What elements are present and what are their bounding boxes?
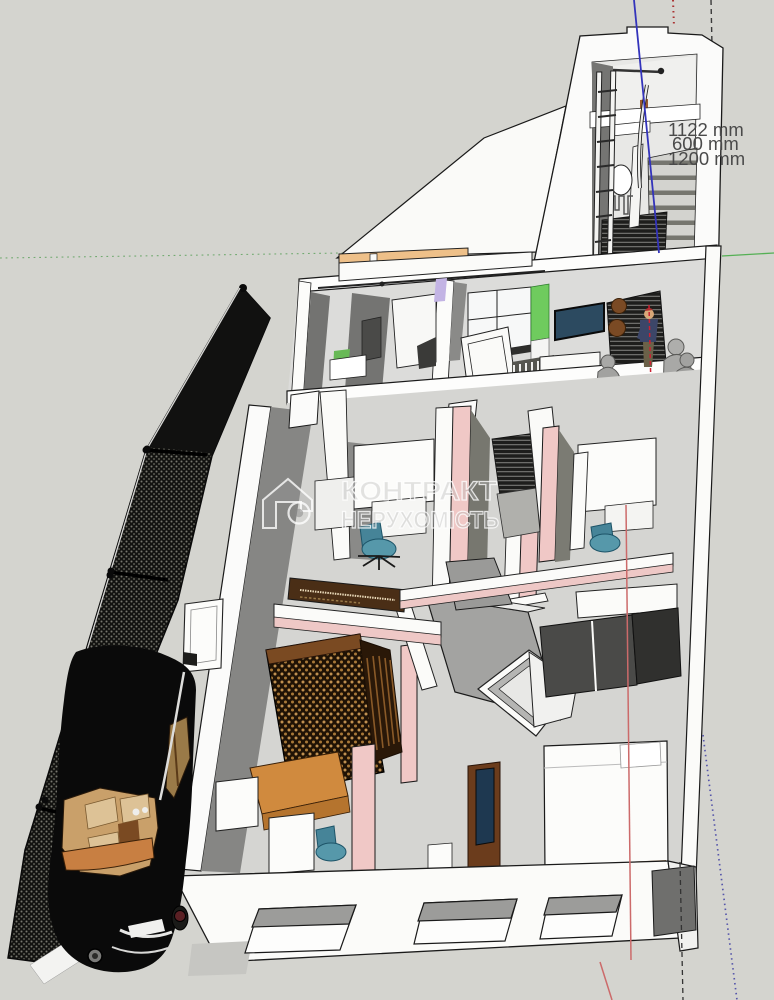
svg-text:1200 mm: 1200 mm — [668, 148, 745, 169]
svg-text:НЕРУХОМІСТЬ: НЕРУХОМІСТЬ — [341, 507, 499, 534]
svg-text:КОНТРАКТ: КОНТРАКТ — [341, 476, 498, 506]
